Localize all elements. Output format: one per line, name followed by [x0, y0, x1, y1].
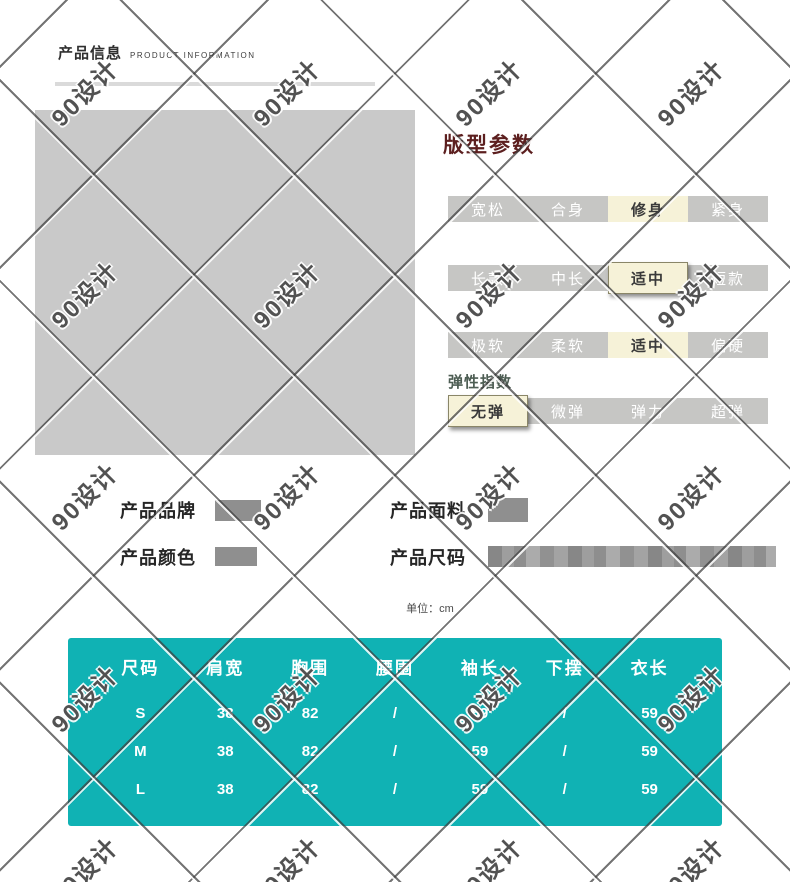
color-value-bar	[215, 547, 257, 566]
table-cell: /	[522, 732, 607, 770]
table-header-cell: 胸围	[268, 638, 353, 694]
table-header-cell: 肩宽	[183, 638, 268, 694]
table-header-cell: 衣长	[607, 638, 692, 694]
option-row-fit: 宽松 合身 修身 紧身	[448, 196, 768, 222]
fabric-label: 产品面料	[390, 497, 466, 523]
table-cell: 38	[183, 770, 268, 808]
option-chip[interactable]: 合身	[528, 196, 608, 222]
table-cell: M	[98, 732, 183, 770]
table-cell: 82	[268, 732, 353, 770]
option-chip-selected[interactable]: 适中	[608, 332, 688, 358]
option-chip[interactable]: 宽松	[448, 196, 528, 222]
table-cell: 59	[607, 694, 692, 732]
option-chip[interactable]: 微弹	[528, 398, 608, 424]
page-subtitle: PRODUCT INFORMATION	[130, 51, 256, 60]
product-detail-page: 产品信息 PRODUCT INFORMATION 版型参数 宽松 合身 修身 紧…	[0, 0, 790, 882]
table-cell: /	[522, 770, 607, 808]
table-cell: 59	[607, 732, 692, 770]
elasticity-row-label: 弹性指数	[448, 371, 512, 392]
params-section-title: 版型参数	[443, 129, 535, 159]
watermark-text: 90设计	[446, 454, 529, 537]
option-chip[interactable]: 偏硬	[688, 332, 768, 358]
option-chip-selected[interactable]: 修身	[608, 196, 688, 222]
table-header-cell: 下摆	[522, 638, 607, 694]
watermark-text: 90设计	[446, 50, 529, 133]
fabric-value-bar	[488, 498, 528, 522]
table-cell: 59	[437, 694, 522, 732]
table-cell: 59	[437, 770, 522, 808]
watermark-text: 90设计	[42, 828, 125, 882]
table-cell: /	[353, 770, 438, 808]
watermark-text: 90设计	[446, 828, 529, 882]
option-chip[interactable]: 极软	[448, 332, 528, 358]
option-chip[interactable]: 中长	[528, 265, 608, 291]
page-title: 产品信息	[58, 42, 122, 63]
option-chip[interactable]: 柔软	[528, 332, 608, 358]
watermark-text: 90设计	[648, 50, 731, 133]
table-cell: /	[522, 694, 607, 732]
brand-label: 产品品牌	[120, 497, 196, 523]
table-cell: 59	[607, 770, 692, 808]
table-header-cell: 腰围	[353, 638, 438, 694]
table-cell: L	[98, 770, 183, 808]
title-divider	[55, 82, 375, 86]
product-image-placeholder	[35, 110, 415, 455]
table-cell: 38	[183, 694, 268, 732]
page-header: 产品信息 PRODUCT INFORMATION	[58, 42, 256, 63]
table-header-cell: 尺码	[98, 638, 183, 694]
option-chip[interactable]: 弹力	[608, 398, 688, 424]
option-chip-selected[interactable]: 无弹	[448, 395, 528, 427]
size-value-mosaic	[488, 546, 776, 567]
table-header-cell: 袖长	[437, 638, 522, 694]
color-label: 产品颜色	[120, 544, 196, 570]
table-cell: 59	[437, 732, 522, 770]
table-cell: /	[353, 694, 438, 732]
table-cell: 82	[268, 694, 353, 732]
option-chip[interactable]: 长款	[448, 265, 528, 291]
option-chip[interactable]: 超弹	[688, 398, 768, 424]
watermark-text: 90设计	[648, 828, 731, 882]
size-table: 尺码 肩宽 胸围 腰围 袖长 下摆 衣长 S 38 82 / 59 / 59 M…	[68, 638, 722, 826]
option-row-softness: 极软 柔软 适中 偏硬	[448, 332, 768, 358]
option-row-elasticity: 无弹 微弹 弹力 超弹	[448, 398, 768, 424]
option-chip[interactable]: 紧身	[688, 196, 768, 222]
option-row-length: 长款 中长 适中 短款	[448, 265, 768, 291]
watermark-text: 90设计	[244, 828, 327, 882]
option-chip[interactable]: 短款	[688, 265, 768, 291]
watermark-text: 90设计	[244, 454, 327, 537]
option-chip-selected[interactable]: 适中	[608, 262, 688, 294]
watermark-text: 90设计	[42, 454, 125, 537]
table-cell: /	[353, 732, 438, 770]
table-cell: S	[98, 694, 183, 732]
watermark-text: 90设计	[648, 454, 731, 537]
size-label: 产品尺码	[390, 544, 466, 570]
table-cell: 38	[183, 732, 268, 770]
table-cell: 82	[268, 770, 353, 808]
brand-value-bar	[215, 500, 261, 521]
size-table-note: 单位：cm	[360, 600, 500, 616]
